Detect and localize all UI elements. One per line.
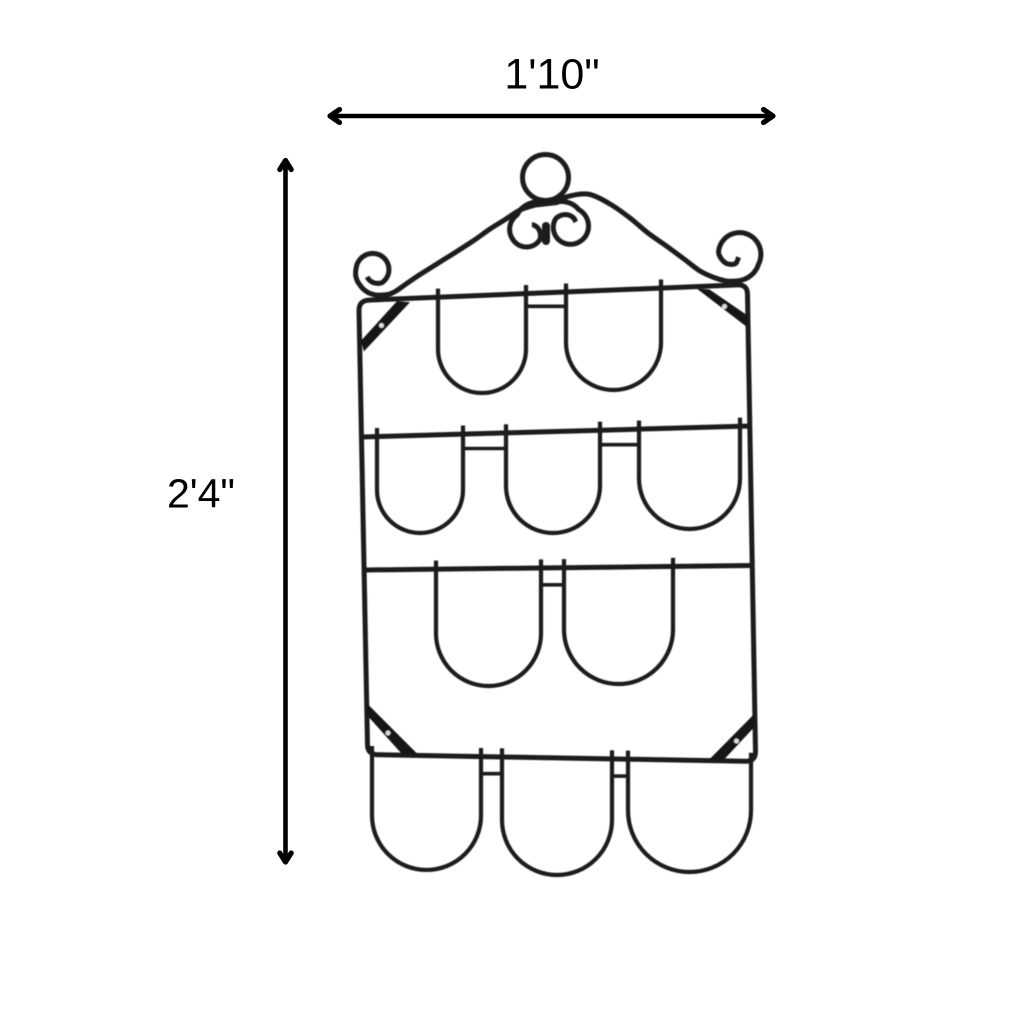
svg-text:1'10": 1'10" bbox=[504, 51, 599, 99]
svg-text:2'4": 2'4" bbox=[167, 471, 235, 517]
